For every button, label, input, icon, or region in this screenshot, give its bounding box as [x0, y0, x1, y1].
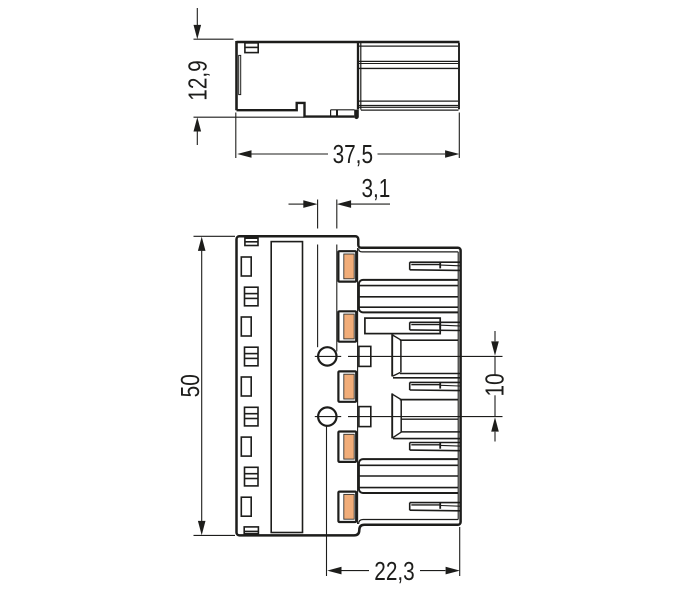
svg-text:50: 50: [176, 374, 205, 397]
svg-text:12,9: 12,9: [183, 60, 212, 100]
svg-text:37,5: 37,5: [333, 140, 373, 169]
svg-text:3,1: 3,1: [361, 174, 390, 203]
svg-text:22,3: 22,3: [374, 557, 414, 586]
svg-text:10: 10: [480, 373, 509, 396]
